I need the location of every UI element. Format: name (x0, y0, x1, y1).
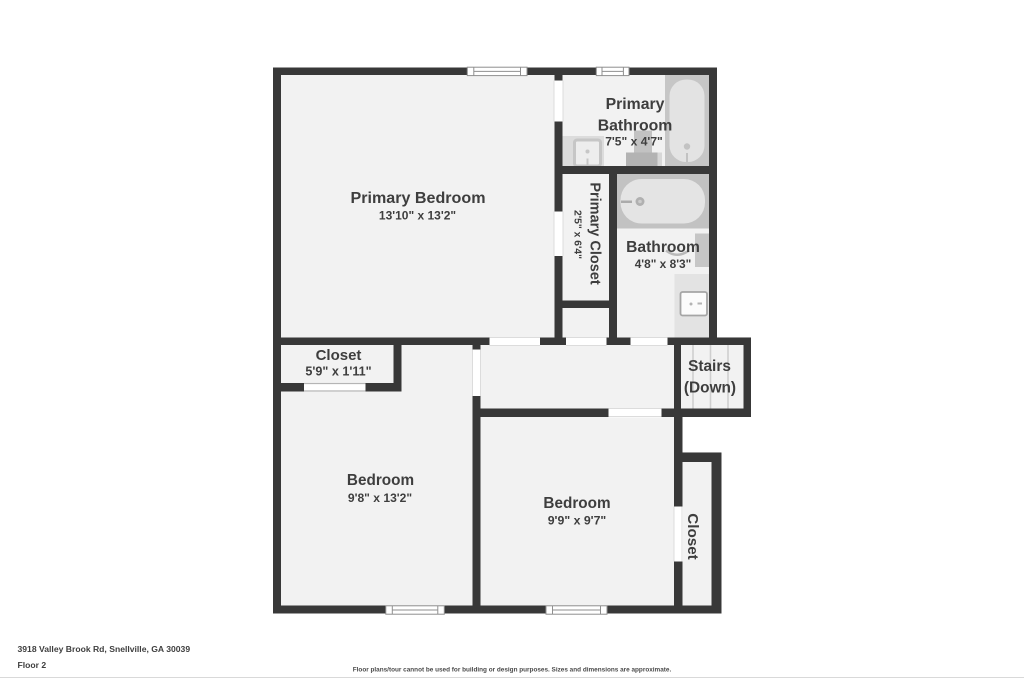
svg-text:9'9" x 9'7": 9'9" x 9'7" (548, 514, 607, 528)
svg-text:7'5" x 4'7": 7'5" x 4'7" (605, 135, 663, 149)
svg-text:2'5" x 6'4": 2'5" x 6'4" (572, 210, 583, 259)
svg-text:Bathroom: Bathroom (598, 118, 673, 135)
svg-text:3918 Valley Brook Rd, Snellvil: 3918 Valley Brook Rd, Snellville, GA 300… (18, 644, 191, 654)
svg-text:Floor 2: Floor 2 (18, 660, 47, 670)
svg-text:Bedroom: Bedroom (347, 472, 414, 489)
svg-text:9'8" x 13'2": 9'8" x 13'2" (348, 491, 412, 505)
svg-text:Floor plans/tour cannot be use: Floor plans/tour cannot be used for buil… (353, 667, 672, 674)
svg-text:4'8" x 8'3": 4'8" x 8'3" (635, 257, 692, 271)
svg-text:Closet: Closet (316, 347, 362, 364)
svg-text:13'10" x 13'2": 13'10" x 13'2" (379, 209, 456, 223)
svg-text:Primary Bedroom: Primary Bedroom (350, 189, 485, 207)
svg-text:5'9" x 1'11": 5'9" x 1'11" (305, 364, 371, 378)
svg-text:Bathroom: Bathroom (626, 239, 700, 256)
svg-text:Primary Closet: Primary Closet (587, 182, 603, 285)
svg-text:Closet: Closet (684, 513, 701, 559)
svg-text:(Down): (Down) (684, 379, 736, 396)
svg-text:Primary: Primary (606, 96, 665, 113)
svg-text:Bedroom: Bedroom (543, 495, 610, 512)
svg-text:Stairs: Stairs (688, 358, 731, 375)
